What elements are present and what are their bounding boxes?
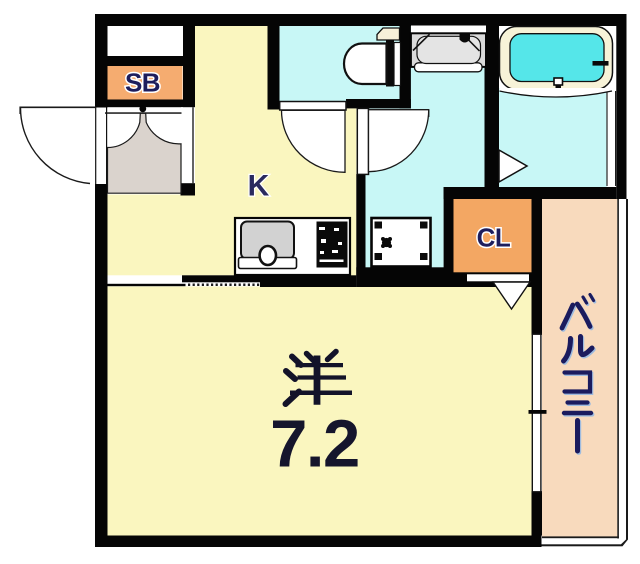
svg-text:CL: CL [477, 223, 511, 253]
svg-text:K: K [248, 170, 270, 203]
svg-text:SB: SB [125, 68, 160, 98]
svg-text:7.2: 7.2 [270, 407, 359, 482]
